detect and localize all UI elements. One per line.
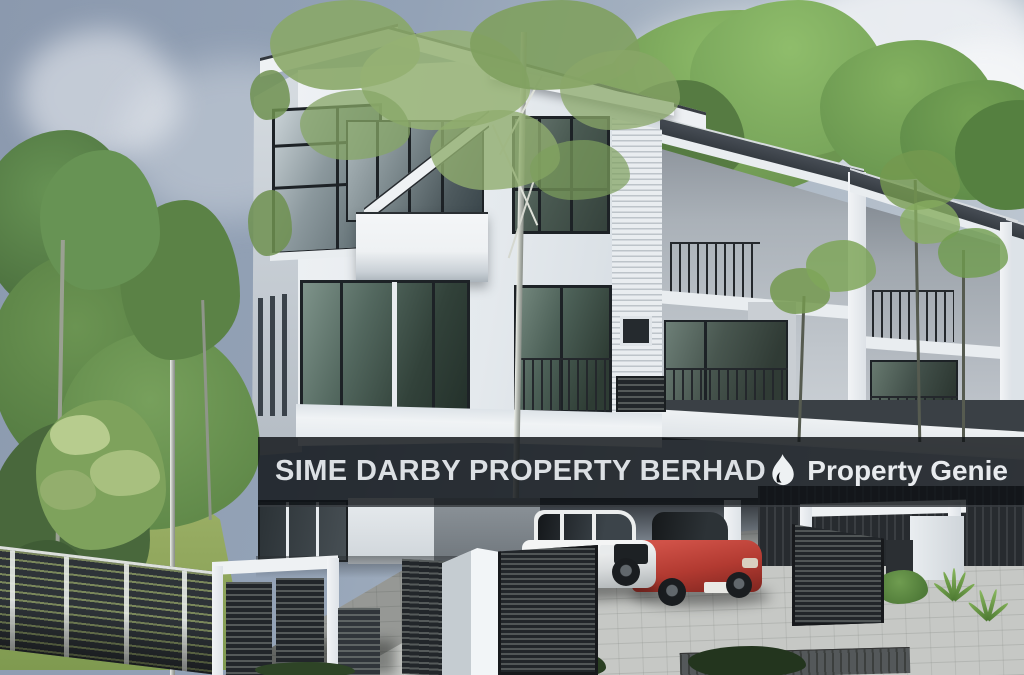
- driveway-gate-open: [792, 522, 884, 626]
- driveway-gate-open: [498, 545, 598, 675]
- watermark-banner: SIME DARBY PROPERTY BERHAD Property Geni…: [258, 437, 1024, 507]
- mailbox-pillar: [338, 608, 380, 675]
- pedestrian-gate: [226, 582, 272, 675]
- gate-panel: [402, 559, 446, 675]
- gate-top-beam: [212, 555, 338, 575]
- gatehouse-wall: [910, 516, 964, 580]
- genie-flame-icon: [769, 453, 796, 489]
- pillar-shade: [442, 548, 471, 675]
- entrance-pillar: [442, 548, 506, 675]
- developer-name: SIME DARBY PROPERTY BERHAD: [275, 455, 766, 488]
- brand-logo: Property Genie: [769, 453, 1008, 489]
- pedestrian-gate: [276, 578, 324, 675]
- gatehouse-doorway: [886, 540, 913, 580]
- gate-post: [212, 566, 223, 675]
- brand-name: Property Genie: [807, 455, 1008, 487]
- garden-fence: [0, 546, 218, 675]
- property-render: SIME DARBY PROPERTY BERHAD Property Geni…: [0, 0, 1024, 675]
